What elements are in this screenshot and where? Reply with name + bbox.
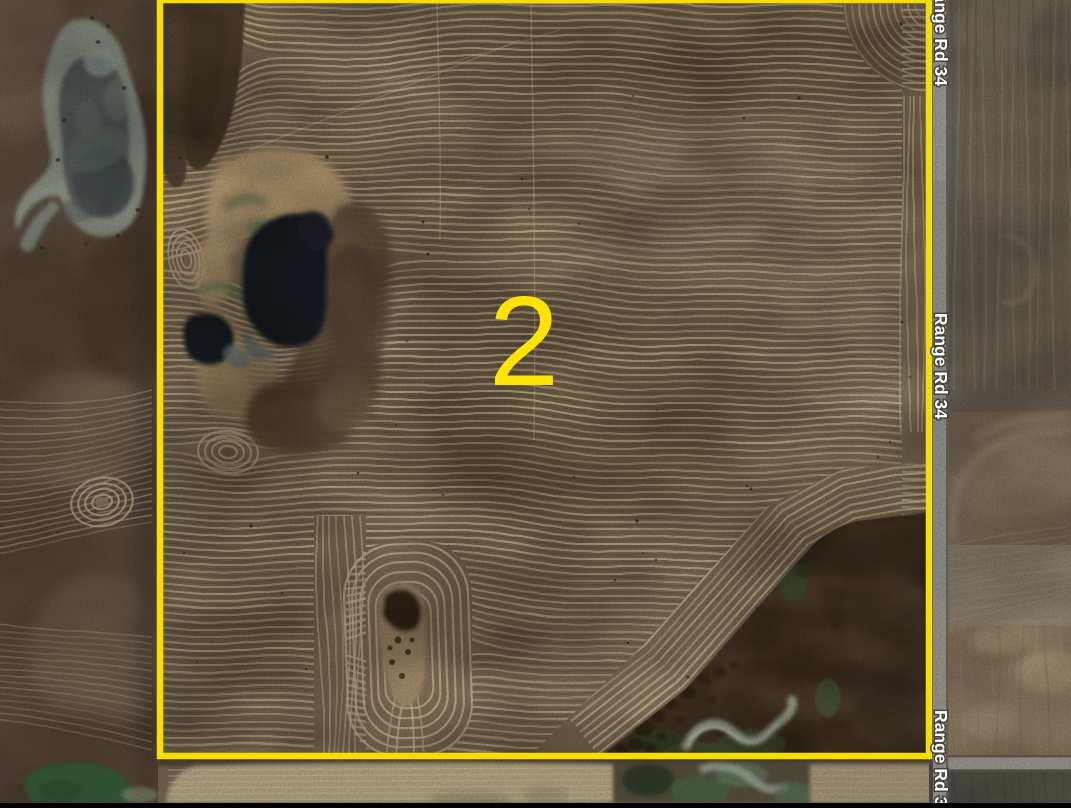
svg-text:2: 2 [489, 270, 560, 412]
svg-text:Range Rd 34: Range Rd 34 [931, 710, 951, 803]
svg-text:Range Rd 34: Range Rd 34 [931, 0, 951, 86]
svg-text:Range Rd 34: Range Rd 34 [931, 313, 951, 419]
